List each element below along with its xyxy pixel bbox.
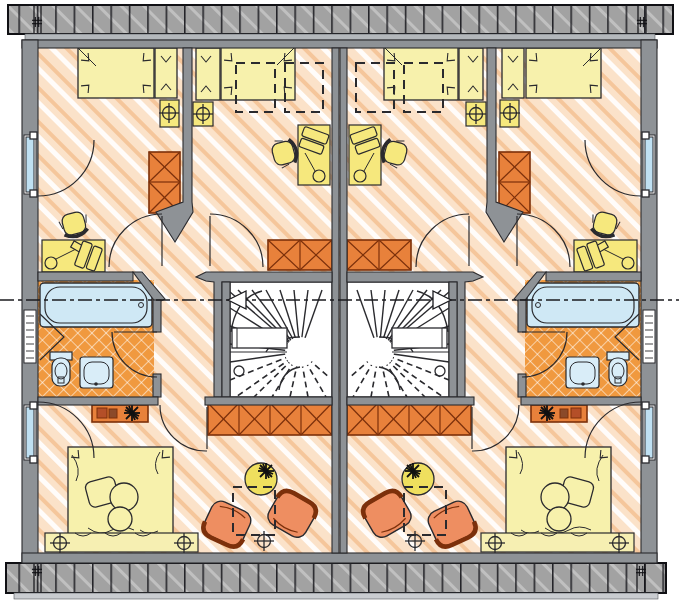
wardrobe xyxy=(149,152,180,213)
double-bed xyxy=(68,447,173,537)
roof-eave-bottom xyxy=(6,563,666,599)
wall-shelf xyxy=(531,405,587,422)
toilet xyxy=(607,352,629,386)
exterior-wall-left xyxy=(22,40,38,563)
floor-plan xyxy=(0,0,679,600)
newel-post xyxy=(435,366,445,376)
sideboard xyxy=(268,240,332,270)
bathtub xyxy=(527,283,639,327)
washbasin xyxy=(566,357,599,388)
exterior-wall-right xyxy=(641,40,657,563)
wall-shelf xyxy=(92,405,148,422)
single-bed xyxy=(78,48,177,98)
bathtub xyxy=(40,283,152,327)
bottom-wall-ledge xyxy=(14,593,658,599)
plant-icon xyxy=(124,405,140,421)
round-table xyxy=(245,463,277,495)
top-wall-ledge xyxy=(25,34,655,40)
sideboard xyxy=(347,240,411,270)
wardrobe xyxy=(499,152,530,213)
double-bed xyxy=(506,447,611,537)
newel-post xyxy=(234,366,244,376)
washbasin xyxy=(80,357,113,388)
plant-icon xyxy=(405,463,421,479)
long-wardrobe xyxy=(347,403,471,435)
stair-landing xyxy=(392,328,447,348)
stair-landing xyxy=(232,328,287,348)
bed-bench xyxy=(45,533,198,553)
single-bed xyxy=(196,47,295,100)
plant-icon xyxy=(539,405,555,421)
desk xyxy=(349,125,381,185)
exterior-wall-bottom xyxy=(22,553,657,563)
exterior-wall-top xyxy=(22,40,657,48)
desk xyxy=(298,125,330,185)
toilet xyxy=(50,352,72,386)
plant-icon xyxy=(258,463,274,479)
single-bed xyxy=(384,47,483,100)
floor-plan-drawing xyxy=(0,0,679,600)
roof-eave-top xyxy=(8,5,673,40)
bed-bench xyxy=(481,533,634,553)
single-bed xyxy=(502,48,601,98)
desk xyxy=(574,240,637,272)
long-wardrobe xyxy=(208,403,332,435)
desk xyxy=(42,240,105,272)
